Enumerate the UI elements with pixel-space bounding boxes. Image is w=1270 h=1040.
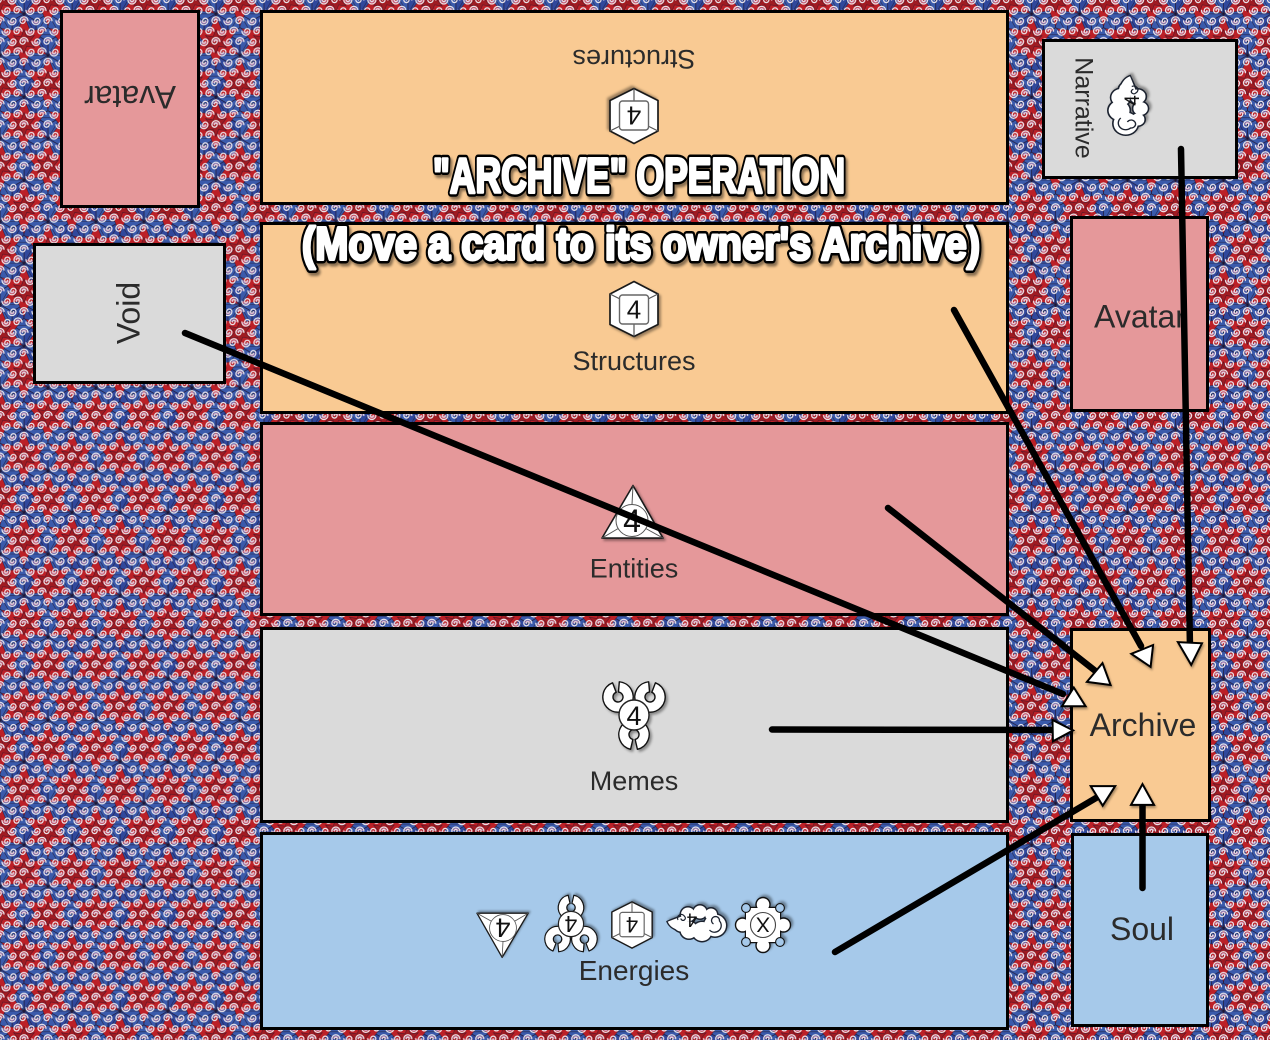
svg-text:Structures: Structures [572, 44, 695, 74]
svg-text:Narrative: Narrative [1069, 57, 1097, 158]
svg-text:(Move a card to its owner's Ar: (Move a card to its owner's Archive) [302, 218, 980, 270]
svg-text:Energies: Energies [579, 955, 690, 986]
svg-text:Entities: Entities [590, 554, 679, 584]
svg-text:Soul: Soul [1110, 911, 1174, 947]
svg-text:Avatar: Avatar [84, 79, 176, 115]
svg-text:Archive: Archive [1090, 707, 1197, 743]
svg-text:Avatar: Avatar [1094, 299, 1186, 335]
svg-text:Structures: Structures [572, 346, 695, 376]
svg-text:Memes: Memes [590, 766, 679, 796]
svg-text:"ARCHIVE" OPERATION: "ARCHIVE" OPERATION [433, 150, 845, 204]
svg-text:Void: Void [110, 282, 146, 344]
